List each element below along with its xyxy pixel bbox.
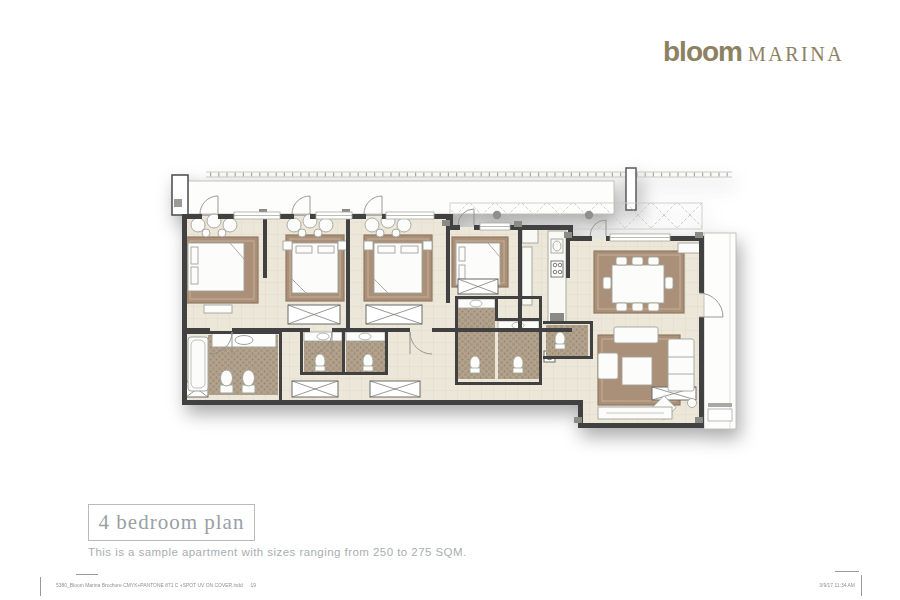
bidet bbox=[242, 370, 255, 393]
brochure-page: bloom MARINA bbox=[0, 0, 900, 600]
nightstand bbox=[283, 241, 292, 250]
coffee-table bbox=[622, 357, 652, 385]
nightstand bbox=[338, 241, 347, 250]
dining-chair bbox=[603, 277, 611, 289]
balcony-end-wall bbox=[172, 175, 188, 215]
sideboard bbox=[678, 243, 700, 253]
terrace-column bbox=[493, 211, 501, 219]
sink bbox=[470, 300, 482, 307]
wardrobe bbox=[366, 305, 422, 324]
brand-logo: bloom MARINA bbox=[663, 38, 844, 66]
dining-chair bbox=[616, 257, 627, 265]
crop-mark bbox=[835, 571, 859, 572]
footer-page-number: 19 bbox=[251, 583, 257, 589]
logo-suffix: MARINA bbox=[748, 44, 844, 64]
terrace-column bbox=[585, 211, 593, 219]
fridge bbox=[522, 229, 538, 243]
dining-table bbox=[612, 265, 664, 303]
crop-mark bbox=[76, 574, 98, 575]
dining-chair bbox=[632, 303, 643, 311]
toilet bbox=[220, 370, 233, 393]
wardrobe bbox=[288, 305, 340, 324]
footer-datetime: 3/9/17 11:34 AM bbox=[789, 583, 855, 589]
dining-chair bbox=[648, 303, 659, 311]
sofa bbox=[668, 339, 694, 391]
wardrobe bbox=[458, 279, 498, 294]
nightstand bbox=[364, 241, 373, 250]
closet bbox=[370, 381, 420, 397]
crop-mark bbox=[40, 577, 41, 596]
sink bbox=[317, 333, 329, 340]
right-balcony-strip bbox=[704, 233, 736, 429]
armchair bbox=[598, 353, 618, 379]
bedroom2-bed bbox=[283, 241, 347, 293]
floor-plan-drawing bbox=[170, 163, 745, 463]
sink bbox=[235, 336, 253, 345]
round-table bbox=[688, 399, 697, 408]
logo-wordmark: bloom bbox=[663, 38, 742, 66]
loveseat bbox=[614, 327, 658, 343]
dining-chair bbox=[648, 257, 659, 265]
dining-chair bbox=[616, 303, 627, 311]
stove bbox=[551, 261, 563, 277]
dining-chair bbox=[632, 257, 643, 265]
master-bathroom bbox=[188, 333, 278, 395]
sink bbox=[359, 333, 371, 340]
dining-chair bbox=[665, 277, 673, 289]
crop-mark bbox=[861, 575, 862, 596]
plan-title-box: 4 bedroom plan bbox=[88, 504, 255, 541]
bedroom1-bench bbox=[204, 305, 232, 313]
nightstand bbox=[423, 241, 432, 250]
bedroom3-bed bbox=[364, 241, 432, 293]
closet bbox=[292, 381, 338, 397]
plan-subtitle: This is a sample apartment with sizes ra… bbox=[88, 546, 467, 558]
footer-filename: 5380_Bloom Marina Brochure CMYK+PANTONE … bbox=[56, 583, 256, 589]
plan-title: 4 bedroom plan bbox=[99, 510, 245, 535]
